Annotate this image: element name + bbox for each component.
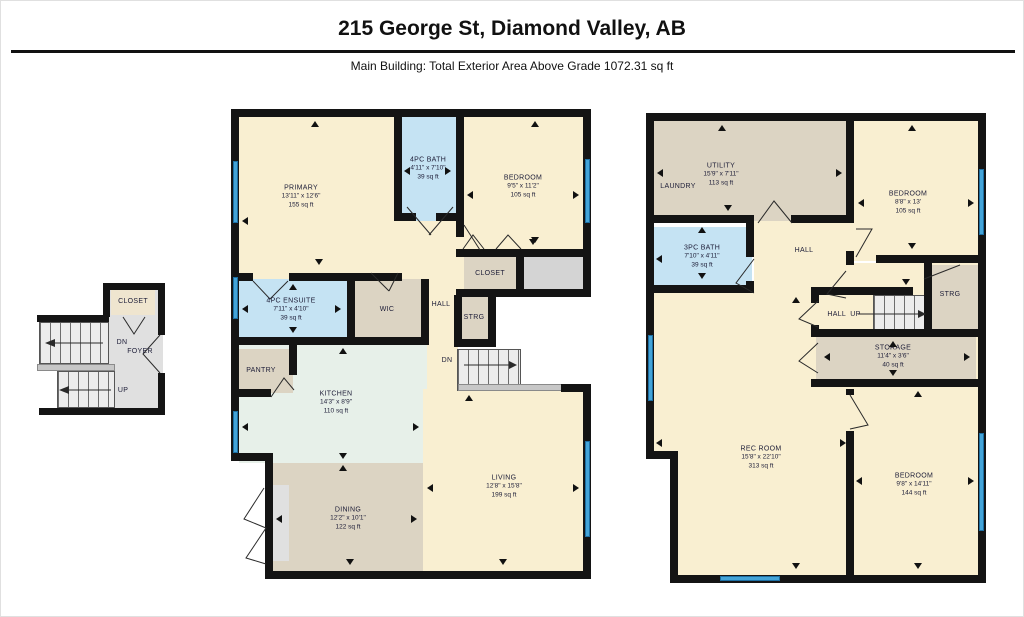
room-label-primary: PRIMARY 13'11" x 12'6" 155 sq ft xyxy=(282,184,321,211)
wall xyxy=(289,345,297,375)
wall xyxy=(347,279,355,341)
room-name: BEDROOM xyxy=(889,190,927,199)
direction-arrow-icon xyxy=(840,439,846,447)
stair-landing xyxy=(458,384,569,391)
direction-arrow-icon xyxy=(311,121,319,127)
wall xyxy=(846,389,854,395)
direction-arrow-icon xyxy=(698,227,706,233)
wall xyxy=(394,213,416,221)
room-name: CLOSET xyxy=(118,298,148,305)
room-dims: 15'9" x 7'11" xyxy=(703,171,738,180)
direction-arrow-icon xyxy=(289,284,297,290)
wall xyxy=(654,285,754,293)
title-divider xyxy=(11,50,1015,53)
room-dims: 13'11" x 12'6" xyxy=(282,193,321,202)
direction-arrow-icon xyxy=(908,243,916,249)
room-name: UP xyxy=(118,387,128,394)
room-area: 39 sq ft xyxy=(410,174,446,183)
direction-arrow-icon xyxy=(531,121,539,127)
room-name: LAUNDRY xyxy=(660,183,695,190)
room-label-kitchen: KITCHEN 14'3" x 8'9" 110 sq ft xyxy=(320,390,353,417)
window xyxy=(720,576,780,581)
room-label-pantry: PANTRY xyxy=(246,366,276,376)
direction-arrow-icon xyxy=(657,169,663,177)
room-area: 144 sq ft xyxy=(895,490,933,499)
room-area: 122 sq ft xyxy=(330,524,366,533)
room-area: 39 sq ft xyxy=(684,262,720,271)
direction-arrow-icon xyxy=(467,191,473,199)
window xyxy=(585,159,590,223)
room-dims: 9'8" x 14'11" xyxy=(895,481,933,490)
room-label-bedroom: BEDROOM 9'5" x 11'2" 105 sq ft xyxy=(504,174,542,201)
wall xyxy=(654,215,754,223)
room-name: REC ROOM xyxy=(741,445,782,454)
wall xyxy=(561,384,591,392)
direction-arrow-icon xyxy=(315,259,323,265)
room-label-bedroom-upper: BEDROOM 8'8" x 13' 105 sq ft xyxy=(889,190,927,217)
room-dims: 14'3" x 8'9" xyxy=(320,399,353,408)
room-name: 4PC BATH xyxy=(410,156,446,165)
direction-arrow-icon xyxy=(908,125,916,131)
direction-arrow-icon xyxy=(335,305,341,313)
staircase-up xyxy=(57,371,115,408)
wall xyxy=(289,273,402,281)
direction-arrow-icon xyxy=(242,305,248,313)
room-dims: 7'10" x 4'11" xyxy=(684,253,720,262)
direction-arrow-icon xyxy=(242,217,248,225)
room-label-4pc-ensuite: 4PC ENSUITE 7'11" x 4'10" 39 sq ft xyxy=(266,297,315,324)
direction-arrow-icon xyxy=(413,423,419,431)
direction-arrow-icon xyxy=(889,370,897,376)
room-name: CLOSET xyxy=(475,270,505,277)
direction-arrow-icon xyxy=(339,348,347,354)
room-label-foyer: FOYER xyxy=(127,347,153,357)
direction-arrow-icon xyxy=(573,191,579,199)
room-dims: 4'11" x 7'10" xyxy=(410,165,446,174)
wall xyxy=(421,279,429,341)
wall xyxy=(231,337,429,345)
wall xyxy=(811,329,978,337)
room-area: 113 sq ft xyxy=(703,180,738,189)
main-floor-plan: PRIMARY 13'11" x 12'6" 155 sq ft 4PC BAT… xyxy=(231,109,596,587)
wall xyxy=(646,113,986,121)
room-area: 39 sq ft xyxy=(266,315,315,324)
floorplan-page: 215 George St, Diamond Valley, AB Main B… xyxy=(0,0,1024,617)
direction-arrow-icon xyxy=(445,167,451,175)
wall xyxy=(265,453,273,579)
direction-arrow-icon xyxy=(346,559,354,565)
wall xyxy=(456,249,591,257)
room-label-storage: STORAGE 11'4" x 3'6" 40 sq ft xyxy=(875,344,911,371)
wall xyxy=(103,283,165,290)
wall xyxy=(670,575,978,583)
wall xyxy=(265,571,591,579)
direction-arrow-icon xyxy=(968,199,974,207)
room-label-closet: CLOSET xyxy=(475,269,505,279)
room-label-foyer-closet: CLOSET xyxy=(118,297,148,307)
staircase-up xyxy=(873,295,928,333)
room-dims: 9'5" x 11'2" xyxy=(504,183,542,192)
room-label-dining: DINING 12'2" x 10'1" 122 sq ft xyxy=(330,506,366,533)
wall xyxy=(456,289,591,297)
window xyxy=(648,335,653,401)
wall xyxy=(876,255,978,263)
direction-arrow-icon xyxy=(914,391,922,397)
wall xyxy=(456,213,464,237)
room-dims: 12'2" x 10'1" xyxy=(330,515,366,524)
wall xyxy=(103,283,110,317)
direction-arrow-icon xyxy=(411,515,417,523)
wall xyxy=(846,431,854,577)
room-name: HALL xyxy=(432,301,451,308)
room-name: DINING xyxy=(330,506,366,515)
direction-arrow-icon xyxy=(404,167,410,175)
room-name: LIVING xyxy=(486,474,522,483)
staircase-down xyxy=(39,322,109,364)
room-name: PANTRY xyxy=(246,367,276,374)
wall xyxy=(811,287,913,295)
exterior-notch xyxy=(646,459,670,583)
direction-arrow-icon xyxy=(339,465,347,471)
room-label-4pc-bath: 4PC BATH 4'11" x 7'10" 39 sq ft xyxy=(410,156,446,183)
window xyxy=(979,433,984,531)
direction-arrow-icon xyxy=(427,484,433,492)
wall xyxy=(646,113,654,459)
wall xyxy=(231,109,591,117)
room-area: 110 sq ft xyxy=(320,408,353,417)
room-area: 199 sq ft xyxy=(486,492,522,501)
lower-floor-plan: UTILITY 15'9" x 7'11" 113 sq ft LAUNDRY … xyxy=(646,113,991,587)
room-label-living: LIVING 12'8" x 15'8" 199 sq ft xyxy=(486,474,522,501)
room-name: BEDROOM xyxy=(895,472,933,481)
room-name: HALL UP xyxy=(827,311,860,318)
room-rec-lower xyxy=(650,389,850,579)
direction-arrow-icon xyxy=(656,255,662,263)
room-label-strg: STRG xyxy=(464,313,485,323)
room-label-hall: HALL xyxy=(432,300,451,310)
direction-arrow-icon xyxy=(858,199,864,207)
wall xyxy=(670,451,678,583)
direction-arrow-icon xyxy=(792,297,800,303)
room-label-hall: HALL xyxy=(795,246,814,256)
direction-arrow-icon xyxy=(856,477,862,485)
room-label-laundry: LAUNDRY xyxy=(660,182,695,192)
wall xyxy=(924,263,932,329)
room-name: 4PC ENSUITE xyxy=(266,297,315,306)
direction-arrow-icon xyxy=(724,205,732,211)
room-closet-2 xyxy=(522,257,583,289)
room-name: WIC xyxy=(380,306,395,313)
wall xyxy=(811,379,978,387)
wall xyxy=(39,408,165,415)
direction-arrow-icon xyxy=(289,327,297,333)
room-name: BEDROOM xyxy=(504,174,542,183)
direction-arrow-icon xyxy=(889,341,897,347)
room-label-wic: WIC xyxy=(380,305,395,315)
direction-arrow-icon xyxy=(914,563,922,569)
room-name: PRIMARY xyxy=(282,184,321,193)
direction-arrow-icon xyxy=(902,279,910,285)
room-label-bedroom-lower: BEDROOM 9'8" x 14'11" 144 sq ft xyxy=(895,472,933,499)
direction-arrow-icon xyxy=(656,439,662,447)
direction-arrow-icon xyxy=(529,239,537,245)
stair-landing xyxy=(37,364,115,371)
page-title: 215 George St, Diamond Valley, AB xyxy=(1,17,1023,41)
room-area: 313 sq ft xyxy=(741,463,782,472)
room-name: KITCHEN xyxy=(320,390,353,399)
label-dn: DN xyxy=(442,356,453,366)
wall xyxy=(456,109,464,221)
direction-arrow-icon xyxy=(573,484,579,492)
wall xyxy=(791,215,849,223)
wall xyxy=(811,287,819,303)
wall xyxy=(37,315,109,322)
label-dn: DN xyxy=(117,338,128,348)
room-name: 3PC BATH xyxy=(684,244,720,253)
wall xyxy=(239,389,271,397)
direction-arrow-icon xyxy=(242,423,248,431)
wall xyxy=(158,283,165,335)
room-utility xyxy=(650,117,850,223)
direction-arrow-icon xyxy=(968,477,974,485)
room-name: DN xyxy=(117,339,128,346)
direction-arrow-icon xyxy=(824,353,830,361)
room-dims: 15'8" x 22'10" xyxy=(741,454,782,463)
foyer-stair-detail: CLOSET DN FOYER UP xyxy=(31,283,171,418)
room-name: STRG xyxy=(940,291,961,298)
room-area: 105 sq ft xyxy=(889,208,927,217)
wall xyxy=(846,251,854,265)
room-name: FOYER xyxy=(127,348,153,355)
window xyxy=(233,411,238,453)
window xyxy=(233,277,238,319)
room-label-hall-up: HALL UP xyxy=(827,310,860,320)
room-area: 105 sq ft xyxy=(504,192,542,201)
room-rec xyxy=(650,291,813,391)
wall xyxy=(746,223,754,257)
window xyxy=(979,169,984,235)
wall xyxy=(846,113,854,223)
label-up: UP xyxy=(118,386,128,396)
direction-arrow-icon xyxy=(276,515,282,523)
window xyxy=(233,161,238,223)
direction-arrow-icon xyxy=(698,273,706,279)
room-label-strg: STRG xyxy=(940,290,961,300)
direction-arrow-icon xyxy=(465,395,473,401)
wall xyxy=(394,109,402,221)
room-dims: 8'8" x 13' xyxy=(889,199,927,208)
room-dims: 7'11" x 4'10" xyxy=(266,306,315,315)
room-label-3pc-bath: 3PC BATH 7'10" x 4'11" 39 sq ft xyxy=(684,244,720,271)
wall xyxy=(454,339,496,347)
room-label-rec-room: REC ROOM 15'8" x 22'10" 313 sq ft xyxy=(741,445,782,472)
room-dims: 11'4" x 3'6" xyxy=(875,353,911,362)
direction-arrow-icon xyxy=(836,169,842,177)
window xyxy=(585,441,590,537)
room-name: DN xyxy=(442,357,453,364)
direction-arrow-icon xyxy=(339,453,347,459)
direction-arrow-icon xyxy=(792,563,800,569)
wall xyxy=(516,257,524,289)
page-subtitle: Main Building: Total Exterior Area Above… xyxy=(1,59,1023,73)
room-dims: 12'8" x 15'8" xyxy=(486,483,522,492)
direction-arrow-icon xyxy=(499,559,507,565)
room-area: 155 sq ft xyxy=(282,202,321,211)
direction-arrow-icon xyxy=(718,125,726,131)
room-name: STRG xyxy=(464,314,485,321)
room-name: UTILITY xyxy=(703,162,738,171)
room-label-utility: UTILITY 15'9" x 7'11" 113 sq ft xyxy=(703,162,738,189)
direction-arrow-icon xyxy=(964,353,970,361)
room-name: HALL xyxy=(795,247,814,254)
